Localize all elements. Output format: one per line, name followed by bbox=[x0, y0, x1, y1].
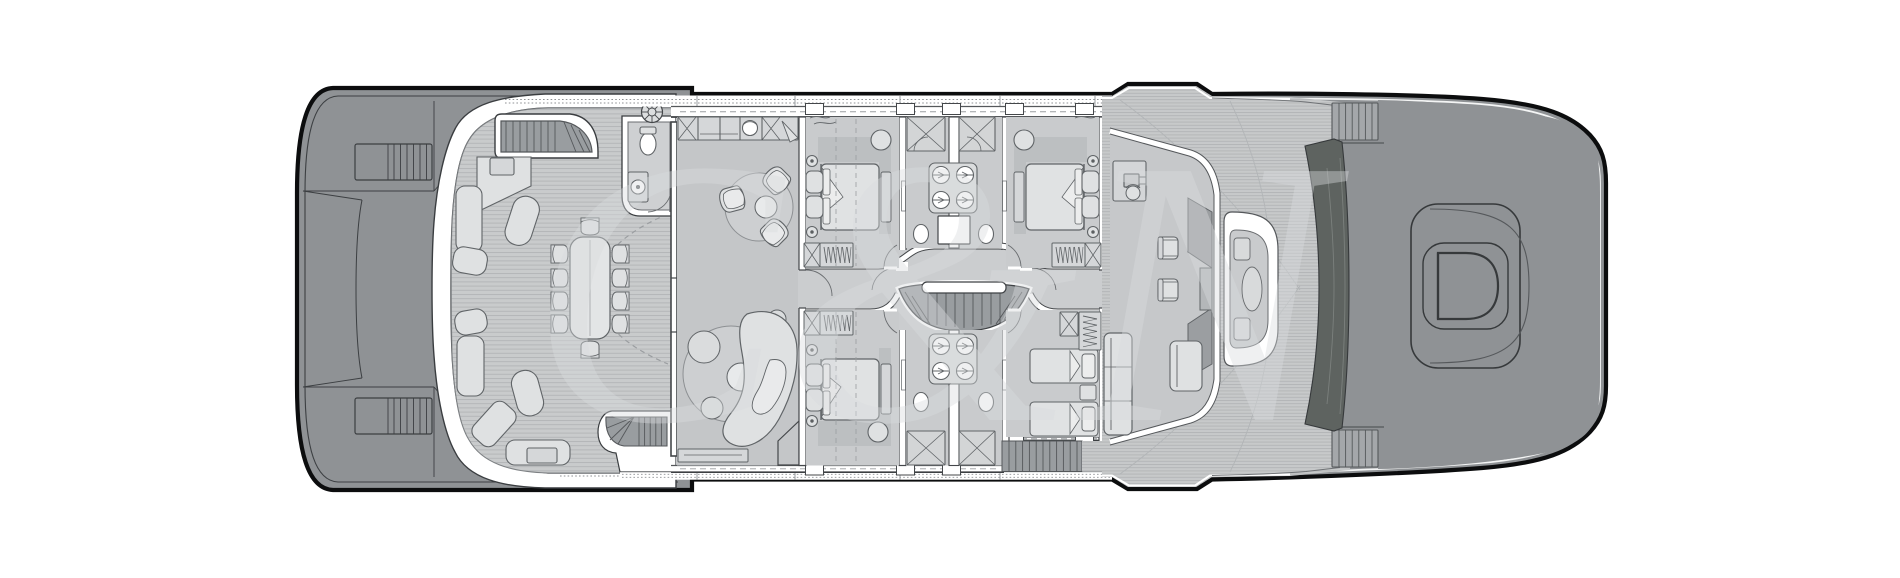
svg-text:C&N: C&N bbox=[529, 82, 1351, 503]
